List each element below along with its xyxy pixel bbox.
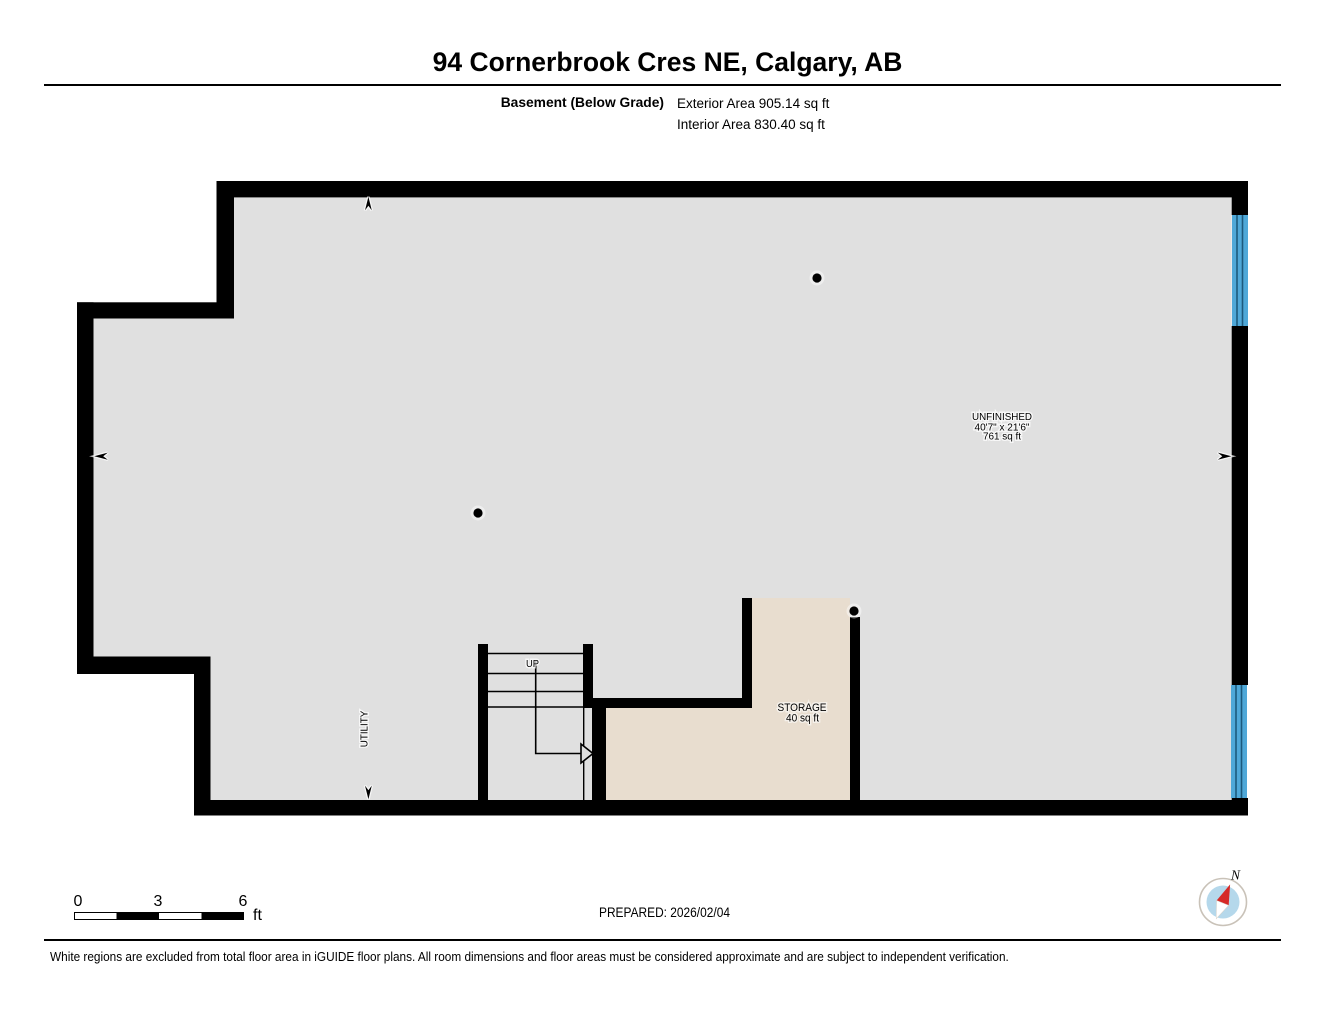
svg-text:N: N [1230,868,1241,883]
svg-text:761 sq ft: 761 sq ft [983,432,1021,443]
svg-text:UTILITY: UTILITY [359,711,370,748]
svg-text:UNFINISHED: UNFINISHED [972,412,1032,423]
svg-text:40 sq ft: 40 sq ft [786,713,819,725]
svg-text:UP: UP [526,659,539,670]
